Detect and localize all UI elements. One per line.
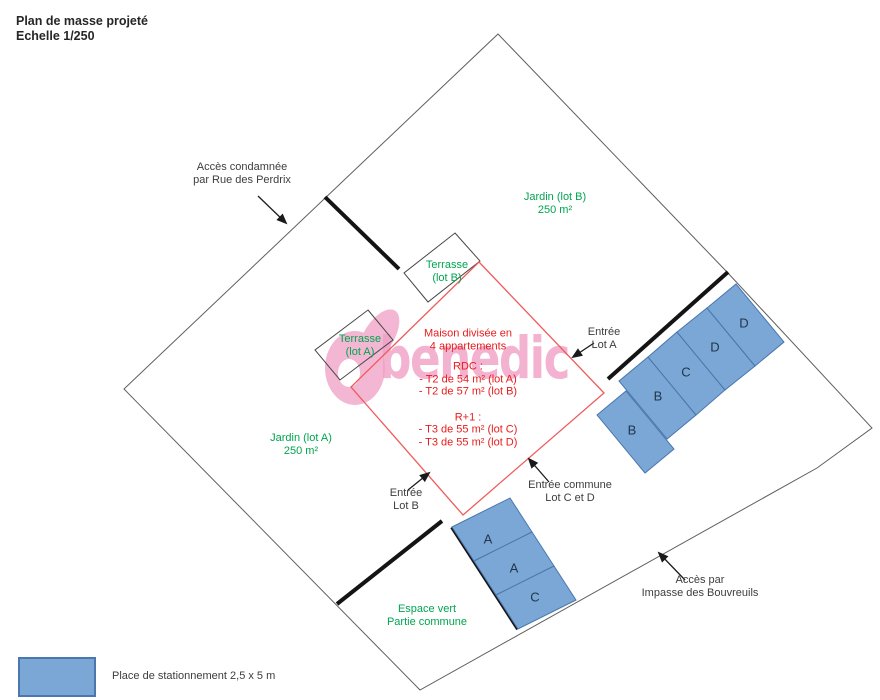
label-acces-condamnee: Accès condamnée par Rue des Perdrix bbox=[193, 161, 291, 187]
label-entree-commune: Entrée commune Lot C et D bbox=[528, 479, 612, 505]
label-espace-vert-line1: Espace vert bbox=[387, 603, 467, 616]
label-entree-commune-line2: Lot C et D bbox=[528, 492, 612, 505]
wall-top-left bbox=[325, 197, 399, 269]
house-rdc-lot-b: - T2 de 57 m² (lot B) bbox=[419, 386, 518, 399]
label-entree-lot-a: Entrée Lot A bbox=[588, 326, 620, 352]
label-jardin-lot-b-area: 250 m² bbox=[524, 204, 586, 217]
label-terrasse-lot-a-line2: (lot A) bbox=[339, 346, 381, 359]
label-jardin-lot-a-line1: Jardin (lot A) bbox=[270, 432, 332, 445]
label-entree-lot-a-line1: Entrée bbox=[588, 326, 620, 339]
label-jardin-lot-b-line1: Jardin (lot B) bbox=[524, 191, 586, 204]
label-terrasse-lot-b: Terrasse (lot B) bbox=[426, 259, 468, 285]
site-plan: benedic bbox=[0, 0, 880, 700]
plan-scale: Echelle 1/250 bbox=[16, 29, 148, 44]
house-r1-header: R+1 : bbox=[419, 411, 518, 424]
stall-label-bottom-a1: A bbox=[484, 532, 493, 547]
house-r1-lot-c: - T3 de 55 m² (lot C) bbox=[419, 424, 518, 437]
legend-parking-label: Place de stationnement 2,5 x 5 m bbox=[112, 670, 275, 682]
stall-label-bottom-c: C bbox=[530, 590, 539, 605]
house-title-line1: Maison divisée en bbox=[419, 328, 518, 341]
stall-label-right-b1: B bbox=[628, 423, 637, 438]
house-rdc-lot-a: - T2 de 54 m² (lot A) bbox=[419, 373, 518, 386]
label-terrasse-lot-b-line1: Terrasse bbox=[426, 259, 468, 272]
label-entree-lot-b-line1: Entrée bbox=[390, 487, 422, 500]
label-espace-vert-line2: Partie commune bbox=[387, 616, 467, 629]
label-terrasse-lot-a: Terrasse (lot A) bbox=[339, 333, 381, 359]
stall-label-right-d2: D bbox=[739, 316, 748, 331]
label-entree-lot-b-line2: Lot B bbox=[390, 500, 422, 513]
wall-bottom-left bbox=[337, 521, 442, 604]
label-terrasse-lot-a-line1: Terrasse bbox=[339, 333, 381, 346]
stall-label-bottom-a2: A bbox=[510, 561, 519, 576]
stall-label-right-d1: D bbox=[710, 340, 719, 355]
house-rdc-header: RDC : bbox=[419, 361, 518, 374]
label-espace-vert: Espace vert Partie commune bbox=[387, 603, 467, 629]
label-terrasse-lot-b-line2: (lot B) bbox=[426, 272, 468, 285]
label-acces-impasse-line2: Impasse des Bouvreuils bbox=[642, 587, 759, 600]
stall-label-right-c: C bbox=[681, 365, 690, 380]
label-jardin-lot-a: Jardin (lot A) 250 m² bbox=[270, 432, 332, 458]
label-acces-condamnee-line2: par Rue des Perdrix bbox=[193, 174, 291, 187]
plan-title: Plan de masse projeté Echelle 1/250 bbox=[16, 14, 148, 44]
label-entree-lot-a-line2: Lot A bbox=[588, 339, 620, 352]
stall-label-right-b2: B bbox=[654, 389, 663, 404]
label-entree-commune-line1: Entrée commune bbox=[528, 479, 612, 492]
house-r1-lot-d: - T3 de 55 m² (lot D) bbox=[419, 436, 518, 449]
label-jardin-lot-b: Jardin (lot B) 250 m² bbox=[524, 191, 586, 217]
arrow-acces-condamnee bbox=[258, 196, 286, 223]
label-acces-impasse-line1: Accès par bbox=[642, 574, 759, 587]
plan-title-line1: Plan de masse projeté bbox=[16, 14, 148, 29]
label-jardin-lot-a-area: 250 m² bbox=[270, 445, 332, 458]
house-title-line2: 4 appartements bbox=[419, 340, 518, 353]
label-entree-lot-b: Entrée Lot B bbox=[390, 487, 422, 513]
label-acces-condamnee-line1: Accès condamnée bbox=[193, 161, 291, 174]
legend-parking-swatch bbox=[18, 657, 96, 697]
house-description: Maison divisée en 4 appartements RDC : -… bbox=[419, 328, 518, 449]
label-acces-impasse: Accès par Impasse des Bouvreuils bbox=[642, 574, 759, 600]
